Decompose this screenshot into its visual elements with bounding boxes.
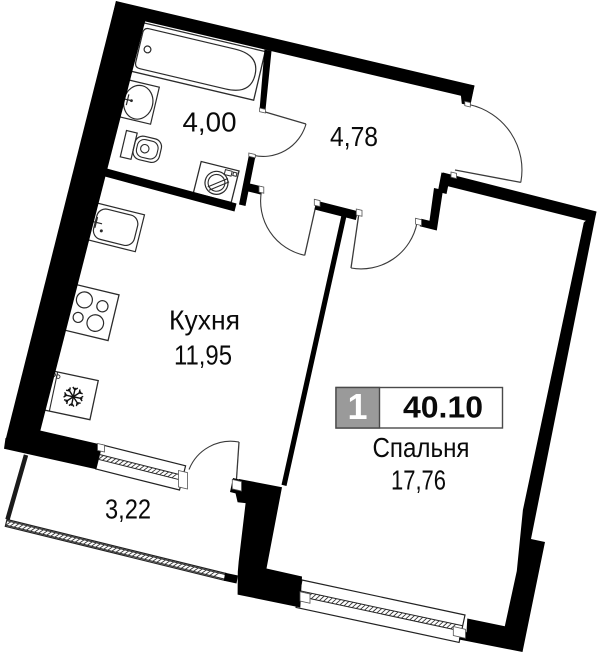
svg-text:4,78: 4,78 — [330, 121, 378, 152]
svg-text:Спальня: Спальня — [373, 432, 470, 463]
svg-text:40.10: 40.10 — [403, 390, 483, 425]
svg-text:Кухня: Кухня — [169, 304, 240, 335]
svg-text:1: 1 — [347, 386, 367, 427]
svg-text:3,22: 3,22 — [105, 493, 151, 524]
svg-text:4,00: 4,00 — [183, 106, 237, 137]
svg-text:17,76: 17,76 — [391, 464, 446, 495]
svg-text:11,95: 11,95 — [174, 339, 232, 370]
